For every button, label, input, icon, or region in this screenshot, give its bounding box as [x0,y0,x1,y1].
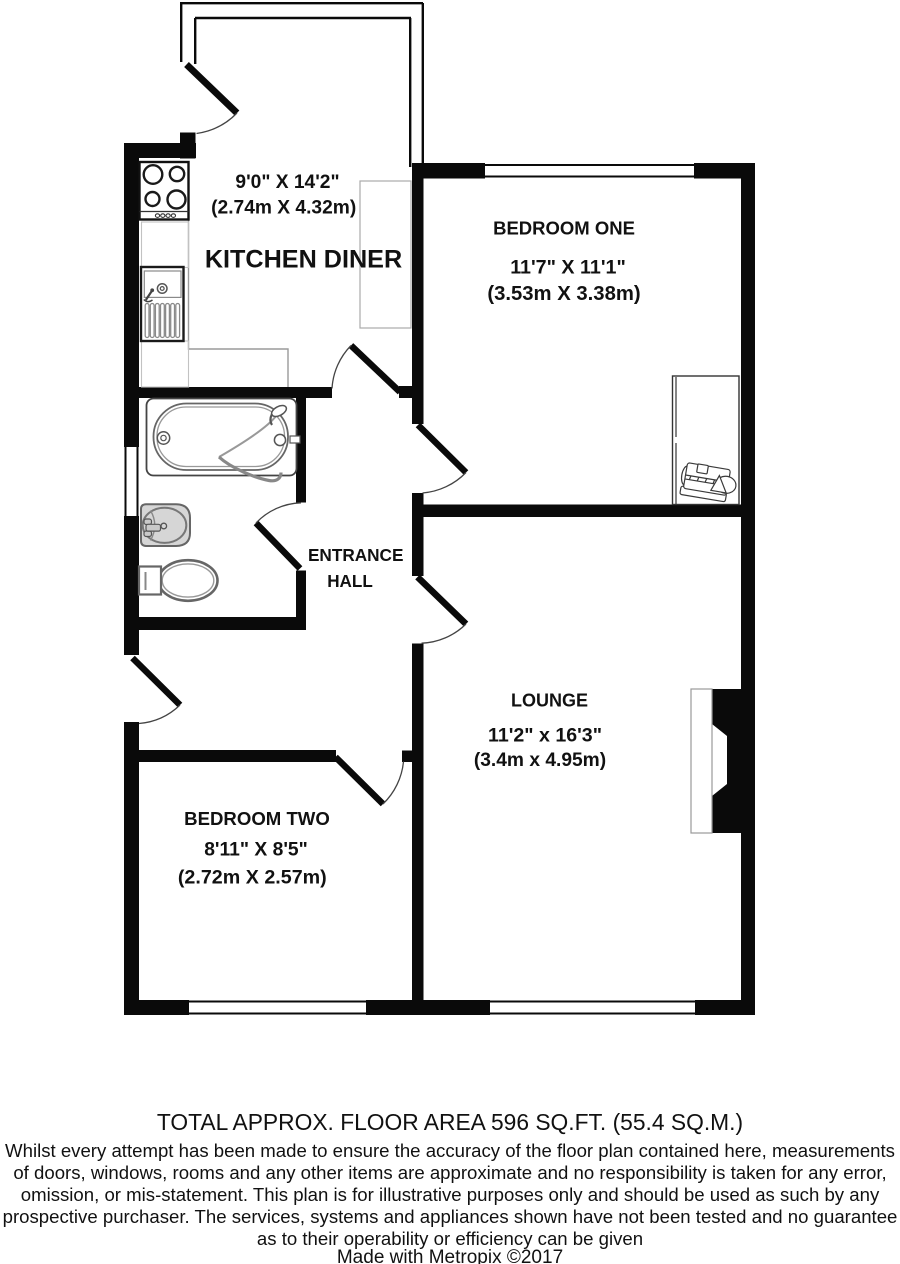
svg-text:11'7" X 11'1": 11'7" X 11'1" [510,257,626,279]
svg-text:ENTRANCE: ENTRANCE [308,545,404,565]
svg-text:(2.74m X 4.32m): (2.74m X 4.32m) [211,198,356,219]
svg-text:TOTAL APPROX. FLOOR AREA 596 S: TOTAL APPROX. FLOOR AREA 596 SQ.FT. (55.… [157,1109,743,1135]
svg-text:as to their operability or eff: as to their operability or efficiency ca… [257,1228,643,1249]
svg-text:8'11" X 8'5": 8'11" X 8'5" [204,840,308,861]
svg-text:LOUNGE: LOUNGE [511,691,588,711]
svg-text:BEDROOM ONE: BEDROOM ONE [493,218,635,239]
svg-text:9'0" X 14'2": 9'0" X 14'2" [235,172,339,193]
svg-text:omission, or mis-statement. Th: omission, or mis-statement. This plan is… [21,1184,880,1205]
svg-text:(3.4m x 4.95m): (3.4m x 4.95m) [474,750,606,771]
svg-text:of doors, windows, rooms and a: of doors, windows, rooms and any other i… [13,1162,886,1183]
svg-text:BEDROOM TWO: BEDROOM TWO [184,808,330,829]
svg-text:Whilst every attempt has been: Whilst every attempt has been made to en… [5,1140,895,1161]
svg-text:(3.53m X 3.38m): (3.53m X 3.38m) [487,283,640,305]
svg-text:(2.72m X 2.57m): (2.72m X 2.57m) [178,867,327,889]
svg-text:prospective purchaser. The ser: prospective purchaser. The services, sys… [3,1206,898,1227]
svg-text:KITCHEN DINER: KITCHEN DINER [205,246,402,274]
svg-text:HALL: HALL [327,572,373,591]
svg-text:Made with Metropix ©2017: Made with Metropix ©2017 [337,1247,563,1264]
svg-text:11'2" x 16'3": 11'2" x 16'3" [488,725,602,747]
